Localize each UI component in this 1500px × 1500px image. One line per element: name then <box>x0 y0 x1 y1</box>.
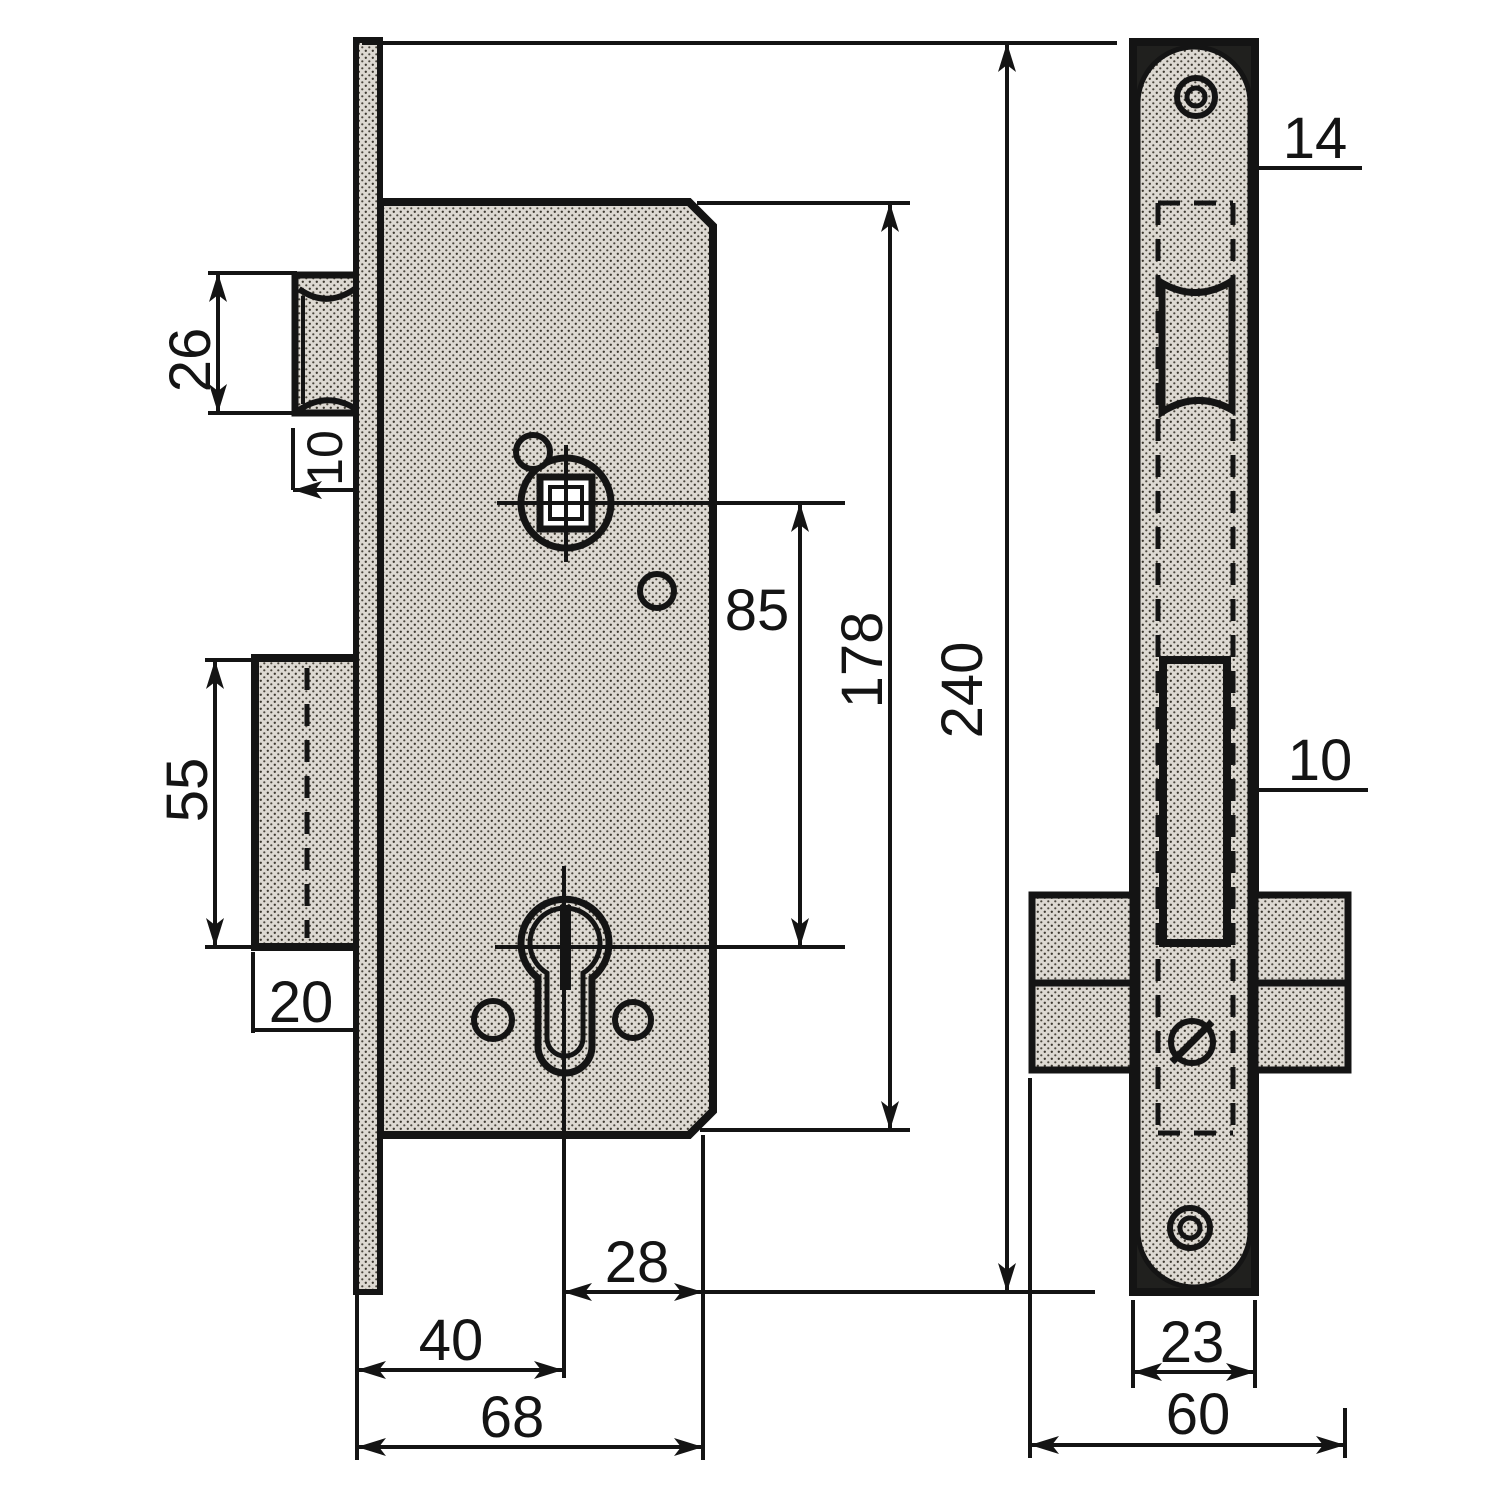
dim-deadbolt-height: 55 <box>155 758 220 823</box>
dim-case-height: 178 <box>830 612 895 709</box>
fixing-screw <box>1171 1021 1213 1063</box>
dim-latch-height: 26 <box>158 328 223 393</box>
cylinder-hole-left <box>474 1001 512 1039</box>
front-view: 26 10 55 20 85 178 240 <box>155 40 1117 1460</box>
technical-drawing-page: 26 10 55 20 85 178 240 <box>0 0 1500 1500</box>
dim-deadbolt-protrusion: 20 <box>269 970 334 1035</box>
latch-bolt-front <box>295 275 360 413</box>
dim-latch-protrusion: 10 <box>297 430 353 486</box>
dim-axis-to-back: 28 <box>605 1230 670 1295</box>
deadbolt-side-slot <box>1163 660 1227 943</box>
dim-spindle-to-cylinder: 85 <box>725 578 790 643</box>
deadbolt-front <box>255 658 358 947</box>
cylinder-hole-right <box>615 1002 651 1038</box>
case-hole-mid <box>640 574 674 608</box>
dim-deadbolt-thickness: 10 <box>1288 728 1353 793</box>
faceplate-front-strip <box>356 40 380 1292</box>
side-view: 14 10 23 60 <box>1030 42 1368 1458</box>
dim-case-thickness: 14 <box>1283 106 1348 171</box>
dim-faceplate-width: 23 <box>1160 1310 1225 1375</box>
case-hole-upper <box>516 435 550 469</box>
dim-backset: 40 <box>419 1308 484 1373</box>
latch-bolt-side <box>1162 281 1232 412</box>
dim-case-depth: 68 <box>480 1385 545 1450</box>
mortise-lock-dimension-drawing: 26 10 55 20 85 178 240 <box>0 0 1500 1500</box>
dim-escutcheon-width: 60 <box>1166 1382 1231 1447</box>
dim-faceplate-height: 240 <box>930 642 995 739</box>
